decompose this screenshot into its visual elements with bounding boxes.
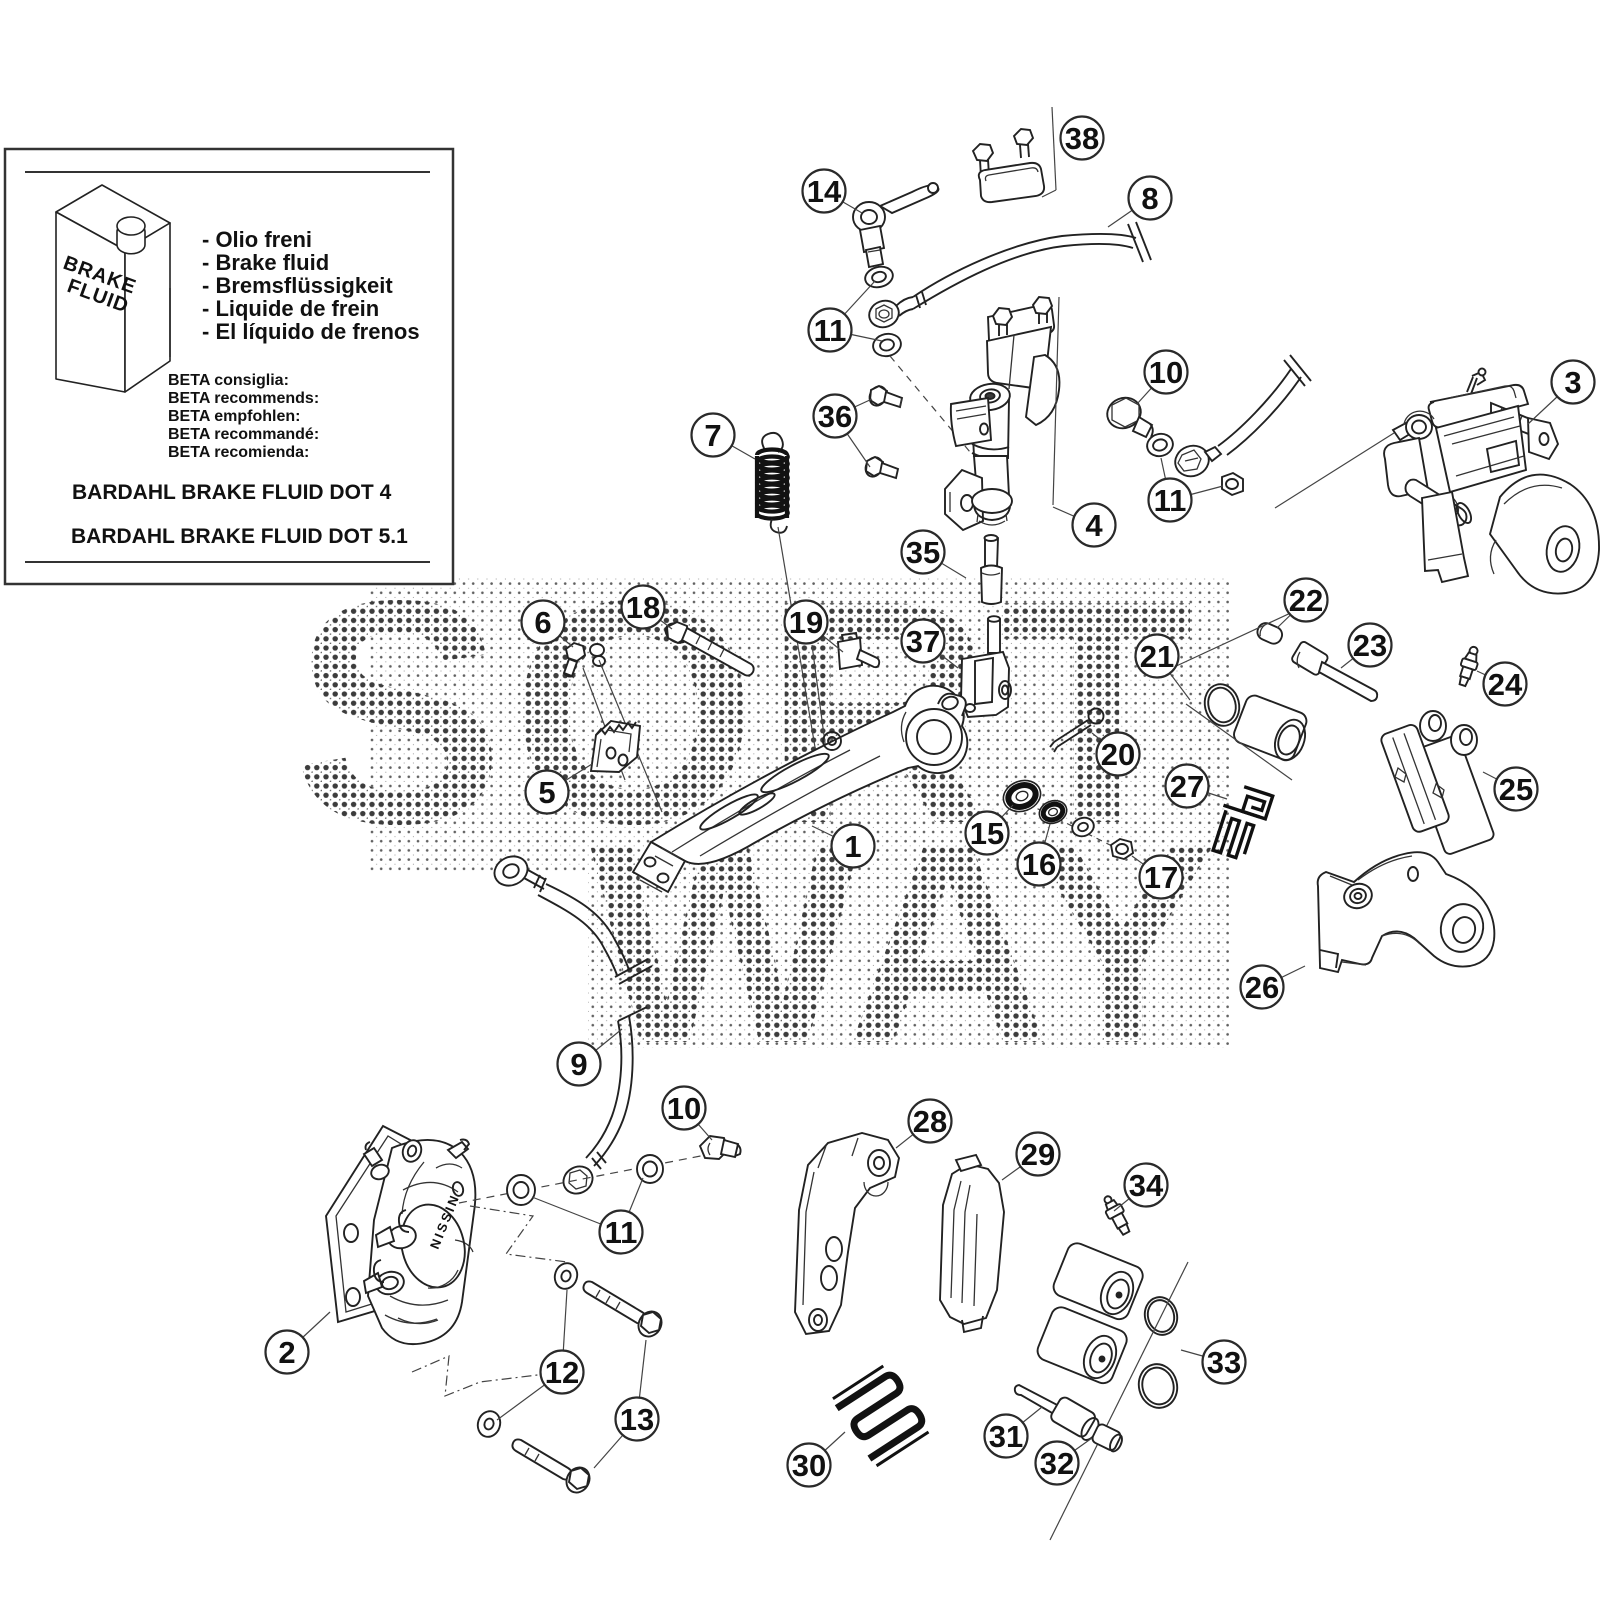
- svg-text:25: 25: [1499, 772, 1533, 807]
- svg-text:10: 10: [667, 1091, 701, 1126]
- svg-text:16: 16: [1022, 847, 1056, 882]
- svg-text:26: 26: [1245, 970, 1279, 1005]
- svg-text:11: 11: [605, 1215, 638, 1250]
- svg-text:7: 7: [704, 418, 721, 453]
- svg-text:36: 36: [818, 399, 852, 434]
- svg-text:8: 8: [1141, 181, 1158, 216]
- svg-text:10: 10: [1149, 355, 1183, 390]
- svg-text:BARDAHL BRAKE FLUID DOT 4: BARDAHL BRAKE FLUID DOT 4: [72, 481, 392, 504]
- svg-text:BETA recommandé:: BETA recommandé:: [168, 426, 319, 443]
- svg-text:24: 24: [1488, 667, 1523, 702]
- svg-text:35: 35: [906, 535, 940, 570]
- svg-text:34: 34: [1129, 1168, 1164, 1203]
- svg-text:BETA recomienda:: BETA recomienda:: [168, 444, 309, 461]
- svg-text:38: 38: [1065, 121, 1099, 156]
- svg-text:- Olio freni: - Olio freni: [202, 227, 312, 252]
- svg-text:- Bremsflüssigkeit: - Bremsflüssigkeit: [202, 273, 393, 298]
- svg-text:15: 15: [970, 816, 1004, 851]
- svg-text:- Liquide de frein: - Liquide de frein: [202, 296, 379, 321]
- svg-text:28: 28: [913, 1104, 947, 1139]
- svg-text:2: 2: [278, 1335, 295, 1370]
- svg-text:17: 17: [1144, 860, 1178, 895]
- svg-text:BETA recommends:: BETA recommends:: [168, 390, 319, 407]
- svg-text:12: 12: [545, 1355, 579, 1390]
- svg-text:13: 13: [620, 1402, 654, 1437]
- svg-text:37: 37: [906, 624, 940, 659]
- svg-text:31: 31: [989, 1419, 1023, 1454]
- svg-text:11: 11: [1154, 483, 1187, 518]
- svg-text:- El líquido de frenos: - El líquido de frenos: [202, 319, 420, 344]
- svg-text:11: 11: [814, 313, 847, 348]
- svg-text:21: 21: [1140, 639, 1174, 674]
- svg-text:23: 23: [1353, 628, 1387, 663]
- svg-text:14: 14: [807, 174, 842, 209]
- svg-text:33: 33: [1207, 1345, 1241, 1380]
- svg-text:27: 27: [1170, 769, 1204, 804]
- svg-text:5: 5: [538, 775, 555, 810]
- svg-text:1: 1: [844, 829, 861, 864]
- svg-text:BETA empfohlen:: BETA empfohlen:: [168, 408, 300, 425]
- svg-text:18: 18: [626, 590, 660, 625]
- svg-text:20: 20: [1101, 737, 1135, 772]
- svg-text:29: 29: [1021, 1137, 1055, 1172]
- svg-text:30: 30: [792, 1448, 826, 1483]
- svg-text:32: 32: [1040, 1446, 1074, 1481]
- svg-text:4: 4: [1085, 508, 1103, 543]
- svg-text:22: 22: [1289, 583, 1323, 618]
- svg-text:6: 6: [534, 605, 551, 640]
- svg-text:BETA consiglia:: BETA consiglia:: [168, 372, 289, 389]
- svg-text:BARDAHL BRAKE FLUID DOT 5.1: BARDAHL BRAKE FLUID DOT 5.1: [71, 525, 408, 548]
- svg-text:19: 19: [789, 605, 823, 640]
- svg-text:3: 3: [1564, 365, 1581, 400]
- svg-text:- Brake fluid: - Brake fluid: [202, 250, 329, 275]
- svg-text:9: 9: [570, 1047, 587, 1082]
